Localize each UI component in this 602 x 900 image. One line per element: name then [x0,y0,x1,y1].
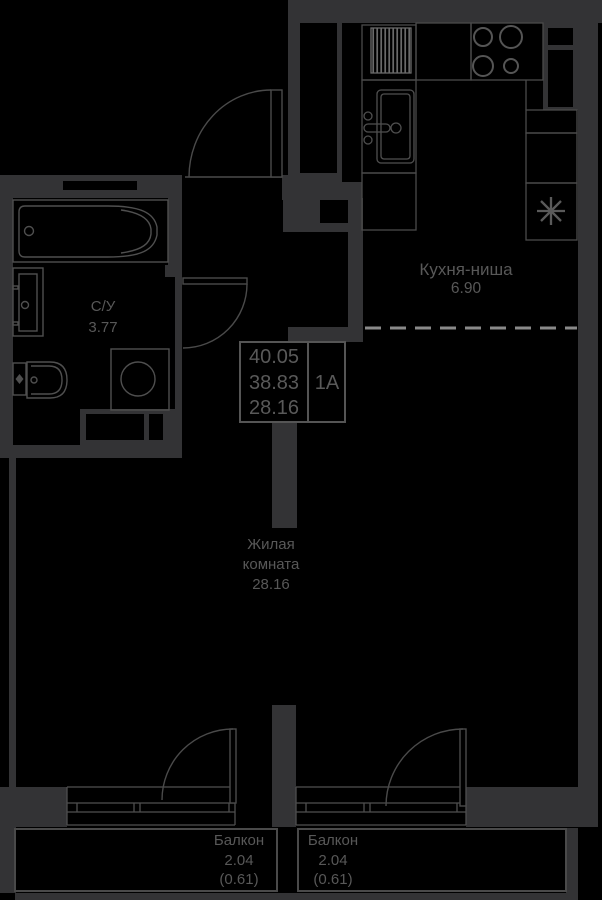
shaft-opening [548,50,573,107]
toilet-bowl [27,362,67,398]
ac-unit-icon [537,197,565,225]
toilet-bowl-inner [31,366,62,394]
door-leaf [271,90,282,177]
counter-cell [362,173,416,230]
door-swing-arc [189,90,271,177]
balcony-right-label: Балкон 2.04 (0.61) [299,831,367,890]
kitchen-area: 6.90 [391,279,541,298]
duct-bar [63,181,137,190]
living-room-name: Жилая комната [231,535,311,575]
wall-segment [9,458,16,793]
balcony-area-reduced: (0.61) [201,870,277,890]
bathroom-label: С/У 3.77 [63,296,143,338]
bathroom-door [183,278,247,348]
bathroom-sink [13,268,43,336]
wall-segment [272,422,297,528]
balcony-area: 2.04 [299,851,367,871]
burner [474,28,492,46]
sink-bracket [13,322,18,325]
wall-segment [288,327,363,342]
washing-machine [111,349,169,410]
wall-segment [466,787,578,827]
balcony-door-right [386,729,466,806]
sink-bowl [377,90,414,163]
kitchen-label: Кухня-ниша 6.90 [391,260,541,298]
sink-outline [13,268,43,336]
wall-segment [578,0,598,827]
sink-bracket [13,286,18,289]
wall-segment [282,175,288,200]
wall-segment [13,445,182,458]
toilet-valve [16,374,24,384]
balcony-area: 2.04 [201,851,277,871]
appliance-cell [526,133,577,183]
sink-tap [22,302,29,309]
washing-machine-outline [111,349,169,410]
toilet-flush [31,377,37,383]
fridge [371,28,411,73]
bathroom-area: 3.77 [63,317,143,338]
burner [473,56,493,76]
plan-drawing [0,0,602,900]
door-leaf [230,729,236,803]
living-room-label: Жилая комната 28.16 [231,535,311,595]
sink-bowl-inner [381,94,410,159]
burner [504,59,518,73]
stove-burners [473,26,522,76]
entry-door [185,90,282,177]
wall-segment [272,705,296,827]
niche-opening [86,414,144,440]
bathroom-name: С/У [63,296,143,317]
bathtub-outline [13,200,168,262]
balcony-area-reduced: (0.61) [299,870,367,890]
balcony-name: Балкон [299,831,367,851]
kitchen-sink [364,90,414,163]
faucet-knob [364,112,372,120]
floor-plan: Кухня-ниша 6.90 С/У 3.77 Жилая комната 2… [0,0,602,900]
toilet [13,362,67,398]
door-leaf [183,278,247,284]
door-swing-arc [386,729,463,806]
washing-machine-drum [121,362,155,396]
appliance-cell [526,110,577,133]
kitchen-name: Кухня-ниша [391,260,541,279]
wall-segment [15,893,578,900]
balcony-name: Балкон [201,831,277,851]
bathtub [13,200,168,262]
wall-segment [0,175,13,458]
wall-segment [283,182,362,200]
wall-segment [168,198,182,265]
wall-segment [9,787,67,827]
door-swing-arc [162,729,233,800]
unit-area-total: 40.05 [242,344,306,370]
window-right [296,787,466,825]
wall-segment [165,265,182,277]
wall-segment [566,828,578,893]
shaft-opening [300,23,337,173]
faucet-spout [391,123,401,133]
counter-cell [416,23,471,80]
bathtub-rim [121,210,151,253]
door-swing-arc [183,284,247,348]
wall-segment [348,198,363,342]
living-room-area: 28.16 [231,575,311,595]
door-leaf [460,729,466,806]
balcony-left-label: Балкон 2.04 (0.61) [201,831,277,890]
shaft-opening [548,28,573,45]
burner [500,26,522,48]
unit-type-badge: 1А [309,370,345,396]
faucet-knob [364,136,372,144]
window-left [67,787,235,825]
balcony-door-left [162,729,236,803]
bathtub-drain [25,227,34,236]
unit-area-reduced: 38.83 [242,370,306,396]
unit-area-living: 28.16 [242,395,306,421]
niche-opening [149,414,163,440]
